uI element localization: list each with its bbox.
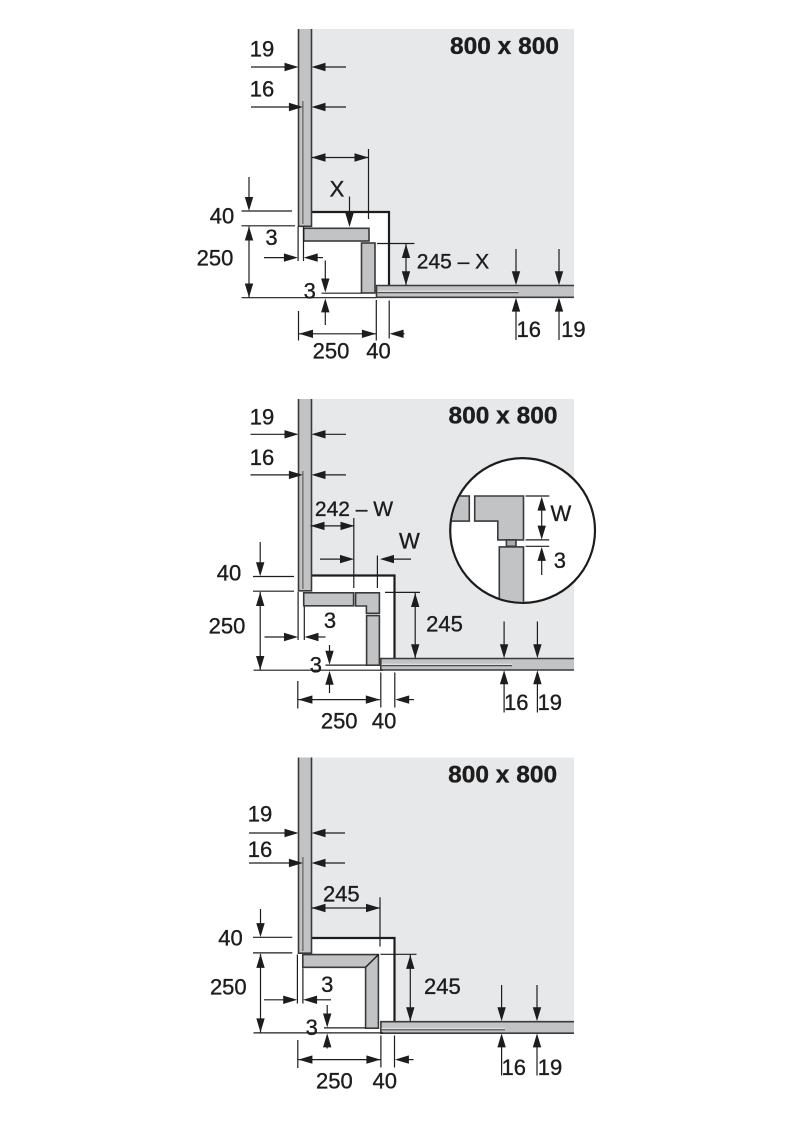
svg-text:19: 19 bbox=[250, 36, 274, 61]
svg-text:19: 19 bbox=[248, 801, 272, 826]
svg-text:W: W bbox=[399, 528, 420, 553]
svg-text:16: 16 bbox=[248, 837, 272, 862]
svg-text:245 – X: 245 – X bbox=[417, 250, 489, 273]
svg-text:19: 19 bbox=[537, 690, 561, 715]
svg-text:3: 3 bbox=[321, 972, 333, 997]
svg-text:3: 3 bbox=[306, 1015, 318, 1040]
svg-text:250: 250 bbox=[197, 245, 234, 270]
svg-text:40: 40 bbox=[372, 1069, 396, 1094]
svg-text:16: 16 bbox=[501, 1055, 525, 1080]
svg-text:40: 40 bbox=[218, 925, 242, 950]
svg-text:245: 245 bbox=[424, 974, 461, 999]
svg-text:16: 16 bbox=[504, 690, 528, 715]
svg-text:250: 250 bbox=[316, 1069, 353, 1094]
svg-text:16: 16 bbox=[250, 445, 274, 470]
svg-text:W: W bbox=[551, 501, 572, 526]
svg-text:16: 16 bbox=[250, 76, 274, 101]
svg-text:242 – W: 242 – W bbox=[315, 498, 393, 521]
svg-text:245: 245 bbox=[323, 881, 360, 906]
svg-text:19: 19 bbox=[538, 1055, 562, 1080]
svg-text:250: 250 bbox=[313, 338, 350, 363]
svg-text:3: 3 bbox=[324, 608, 336, 633]
svg-text:40: 40 bbox=[217, 560, 241, 585]
svg-text:3: 3 bbox=[304, 278, 316, 303]
svg-text:40: 40 bbox=[210, 203, 234, 228]
svg-text:3: 3 bbox=[554, 548, 566, 573]
svg-text:3: 3 bbox=[310, 652, 322, 677]
svg-text:40: 40 bbox=[366, 338, 390, 363]
svg-text:19: 19 bbox=[250, 404, 274, 429]
svg-text:3: 3 bbox=[265, 225, 277, 250]
svg-text:245: 245 bbox=[426, 611, 463, 636]
svg-text:800 x 800: 800 x 800 bbox=[450, 33, 559, 60]
svg-text:250: 250 bbox=[321, 708, 358, 733]
svg-text:250: 250 bbox=[210, 974, 247, 999]
svg-text:40: 40 bbox=[372, 708, 396, 733]
svg-text:X: X bbox=[330, 176, 345, 201]
svg-text:19: 19 bbox=[561, 317, 585, 342]
svg-text:800 x 800: 800 x 800 bbox=[449, 403, 558, 430]
svg-text:16: 16 bbox=[517, 317, 541, 342]
svg-text:800 x 800: 800 x 800 bbox=[448, 762, 557, 789]
svg-text:250: 250 bbox=[209, 613, 246, 638]
